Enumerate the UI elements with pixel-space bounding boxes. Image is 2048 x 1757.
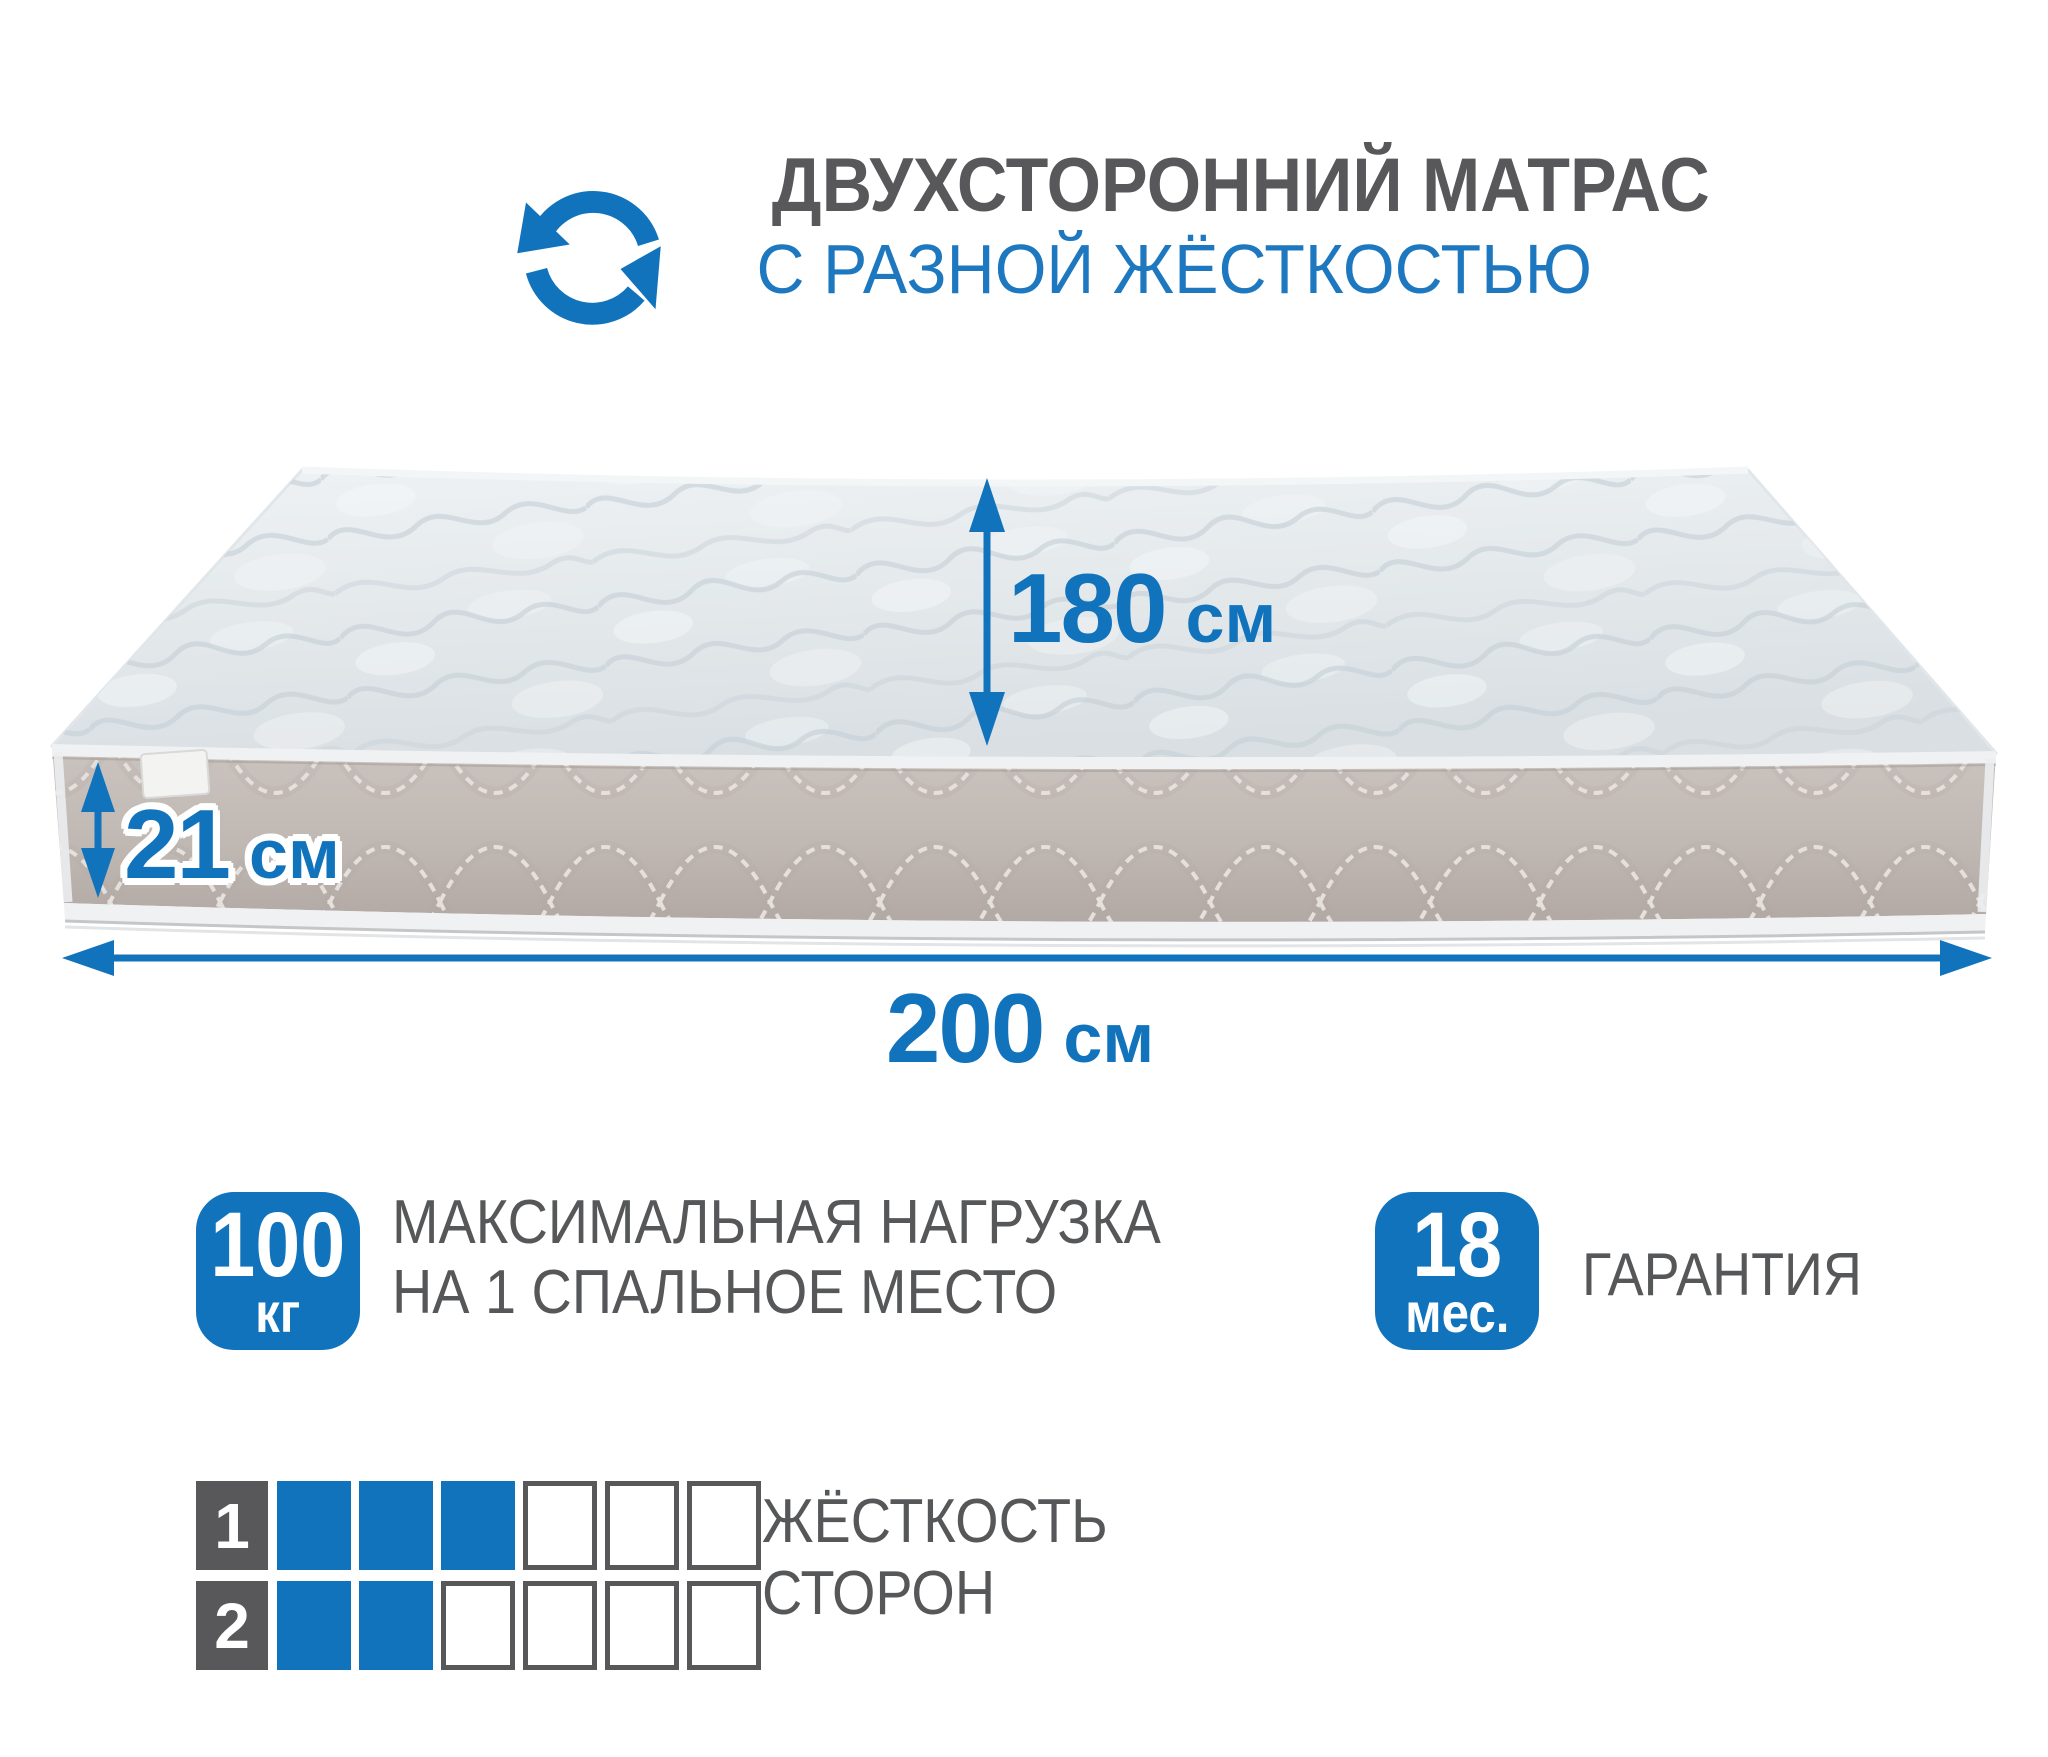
header: ДВУХСТОРОННИЙ МАТРАС С РАЗНОЙ ЖЁСТКОСТЬЮ <box>731 146 1751 306</box>
warranty-badge: 18 мес. <box>1375 1192 1539 1350</box>
mattress-side-face <box>52 746 1996 922</box>
firmness-cell-filled <box>277 1581 351 1670</box>
firmness-cell-empty <box>605 1581 679 1670</box>
page-title: ДВУХСТОРОННИЙ МАТРАС <box>772 146 1710 226</box>
length-arrow <box>62 940 1992 976</box>
firmness-label: ЖЁСТКОСТЬ СТОРОН <box>762 1486 1146 1630</box>
depth-dimension-label: 180см <box>1008 552 1276 665</box>
firmness-cell-filled <box>359 1481 433 1570</box>
max-load-value: 100 <box>210 1203 345 1287</box>
depth-unit: см <box>1186 579 1277 657</box>
firmness-cell-filled <box>359 1581 433 1670</box>
warranty-unit: мес. <box>1405 1287 1509 1339</box>
firmness-side-label: 1 <box>196 1481 268 1570</box>
max-load-unit: кг <box>255 1287 300 1339</box>
firmness-grid: 12 <box>196 1481 769 1681</box>
depth-value: 180 <box>1008 553 1166 663</box>
max-load-line1: МАКСИМАЛЬНАЯ НАГРУЗКА <box>392 1188 1161 1258</box>
max-load-line2: НА 1 СПАЛЬНОЕ МЕСТО <box>392 1258 1057 1328</box>
thickness-unit: см <box>249 815 340 893</box>
warranty-label: ГАРАНТИЯ <box>1582 1240 1893 1310</box>
length-unit: см <box>1063 999 1154 1077</box>
firmness-cell-empty <box>687 1581 761 1670</box>
max-load-badge: 100 кг <box>196 1192 360 1350</box>
firmness-row: 2 <box>196 1581 769 1670</box>
length-value: 200 <box>886 973 1044 1083</box>
firmness-row: 1 <box>196 1481 769 1570</box>
firmness-label-line2: СТОРОН <box>762 1558 995 1630</box>
mattress-bottom-piping <box>64 903 1986 946</box>
warranty-value: 18 <box>1412 1203 1502 1287</box>
thickness-value: 21 <box>124 789 229 899</box>
thickness-dimension-label: 21см <box>124 788 340 901</box>
length-dimension-label: 200см <box>886 972 1154 1085</box>
firmness-side-label: 2 <box>196 1581 268 1670</box>
firmness-cell-empty <box>605 1481 679 1570</box>
thickness-arrow <box>81 762 115 898</box>
firmness-label-line1: ЖЁСТКОСТЬ <box>762 1486 1108 1558</box>
firmness-cell-empty <box>441 1581 515 1670</box>
depth-arrow <box>969 478 1005 746</box>
firmness-cell-filled <box>277 1481 351 1570</box>
firmness-cell-empty <box>687 1481 761 1570</box>
max-load-description: МАКСИМАЛЬНАЯ НАГРУЗКА НА 1 СПАЛЬНОЕ МЕСТ… <box>392 1188 1246 1328</box>
firmness-cell-filled <box>441 1481 515 1570</box>
page-subtitle: С РАЗНОЙ ЖЁСТКОСТЬЮ <box>756 232 1725 306</box>
firmness-cell-empty <box>523 1481 597 1570</box>
firmness-cell-empty <box>523 1581 597 1670</box>
rotate-arrows-icon <box>505 160 680 350</box>
